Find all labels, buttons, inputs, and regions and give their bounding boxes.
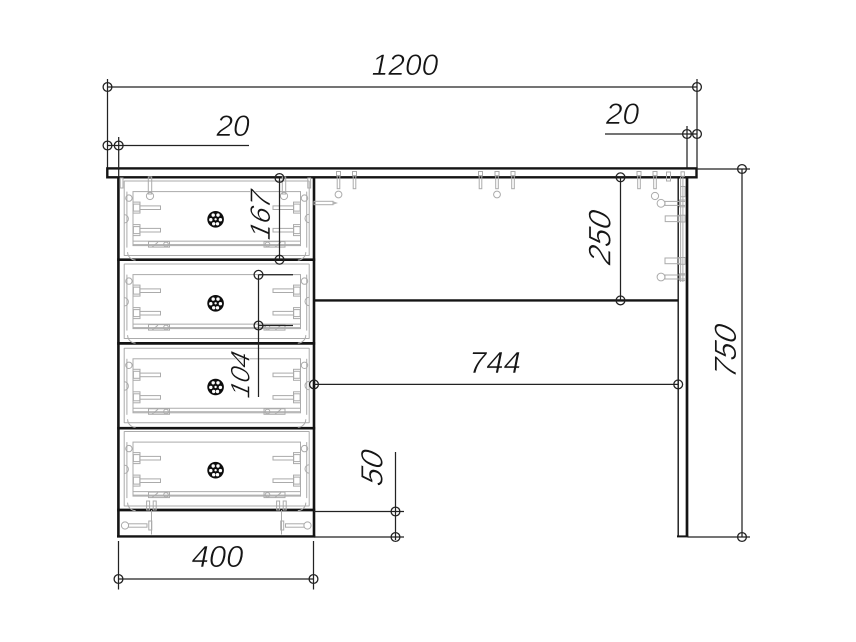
svg-text:167: 167 (245, 187, 277, 243)
svg-text:250: 250 (582, 206, 618, 268)
svg-text:1200: 1200 (372, 49, 439, 82)
svg-text:744: 744 (469, 345, 521, 380)
svg-text:20: 20 (605, 98, 640, 131)
svg-text:20: 20 (215, 110, 250, 143)
svg-text:104: 104 (225, 348, 256, 400)
svg-text:750: 750 (708, 320, 743, 380)
svg-text:400: 400 (192, 539, 244, 574)
